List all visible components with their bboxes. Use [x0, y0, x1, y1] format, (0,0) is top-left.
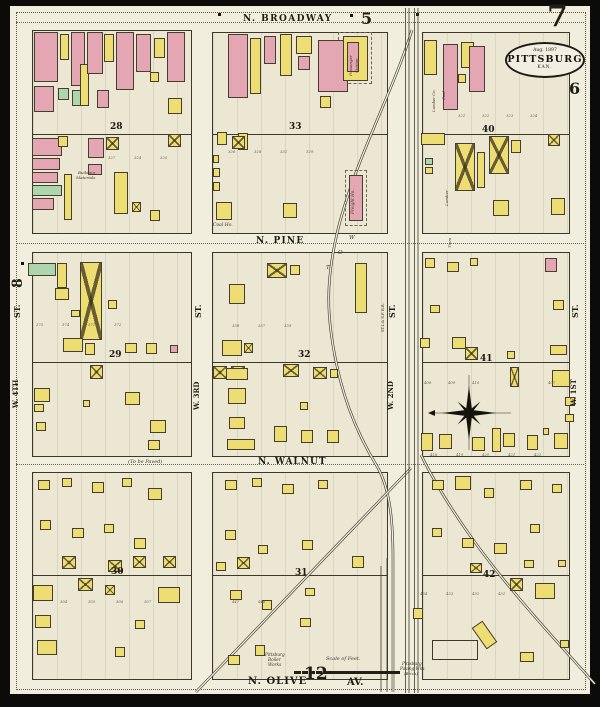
building — [443, 44, 458, 110]
building — [34, 86, 54, 112]
map-label: Lumber — [445, 190, 449, 206]
building — [97, 90, 109, 108]
lot-number: 331 — [280, 150, 287, 154]
building — [88, 138, 104, 158]
lot-number: 421 — [508, 453, 515, 457]
building — [80, 262, 102, 340]
lot-number: 358 — [232, 324, 239, 328]
building — [565, 414, 574, 422]
building — [550, 345, 567, 355]
map-label: W — [349, 236, 355, 242]
lot-number: 447 — [232, 600, 239, 604]
building — [470, 563, 482, 573]
building — [90, 365, 103, 379]
building — [34, 32, 58, 82]
building — [432, 640, 478, 660]
building — [283, 364, 299, 377]
building — [305, 588, 315, 596]
building — [229, 284, 245, 304]
building — [465, 347, 478, 360]
map-seal: Aug. 1897 PITTSBURG KAN. — [505, 42, 585, 78]
lot-number: 408 — [424, 381, 431, 385]
building — [507, 351, 515, 359]
map-label: AV. — [347, 678, 364, 688]
block-number: 29 — [109, 351, 122, 360]
building — [352, 556, 364, 568]
lot-number: 407 — [548, 381, 555, 385]
building — [226, 368, 248, 380]
building — [35, 615, 51, 628]
building — [32, 198, 54, 210]
building — [225, 530, 236, 540]
building — [28, 263, 56, 276]
map-label: 7 — [547, 2, 568, 32]
building — [510, 578, 523, 591]
building — [58, 88, 69, 100]
map-label: N. BROADWAY — [243, 15, 333, 24]
building — [524, 560, 534, 568]
building — [36, 422, 46, 431]
map-label: N. PINE — [256, 237, 304, 246]
map-label: ST. — [571, 305, 579, 318]
seal-city: PITTSBURG — [507, 54, 583, 65]
map-label: Passenger — [349, 55, 353, 76]
block-number: 33 — [289, 123, 302, 132]
lot-number: 326 — [228, 150, 235, 154]
building — [133, 556, 146, 568]
building — [296, 36, 312, 54]
building — [104, 524, 114, 533]
building — [447, 262, 459, 272]
map-label: W. 3RD — [193, 382, 200, 410]
lot-number: 328 — [254, 150, 261, 154]
building — [216, 202, 232, 220]
building — [213, 366, 227, 379]
building — [228, 388, 246, 404]
building — [493, 200, 509, 216]
building — [425, 258, 435, 268]
lot-number: 325 — [160, 156, 167, 160]
map-label: N. WALNUT — [258, 458, 327, 467]
map-label: 12 — [304, 666, 328, 683]
map-label: Lumber Co. — [432, 89, 436, 112]
building — [150, 420, 166, 433]
map-label: ST. — [194, 305, 202, 318]
building — [553, 300, 564, 310]
map-label: 8 — [11, 278, 25, 288]
map-label: Works — [268, 663, 281, 667]
building — [217, 132, 227, 145]
building — [32, 185, 62, 196]
lot-number: 359 — [284, 324, 291, 328]
building — [290, 265, 300, 275]
map-label: W. 4TH — [12, 380, 19, 408]
building — [232, 136, 245, 149]
lot-number: 323 — [506, 114, 513, 118]
building — [34, 404, 44, 412]
building — [72, 528, 84, 538]
building — [320, 96, 331, 108]
lot-number: 306 — [116, 600, 123, 604]
building — [420, 338, 430, 348]
building — [318, 480, 328, 489]
building — [136, 34, 151, 72]
building — [122, 478, 132, 487]
building — [424, 40, 437, 75]
building — [282, 484, 294, 494]
building — [551, 198, 565, 215]
block-number: 28 — [110, 123, 123, 132]
building — [413, 608, 423, 619]
building — [530, 524, 540, 533]
building — [301, 430, 313, 443]
lot-number: 410 — [472, 381, 479, 385]
map-label: 6 — [569, 81, 580, 97]
map-label: Freight Ho. — [351, 189, 355, 214]
building — [330, 369, 338, 378]
map-label: W. 2ND — [387, 381, 394, 410]
lot-number: 305 — [88, 600, 95, 604]
building — [92, 482, 104, 493]
lot-number: 419 — [456, 453, 463, 457]
building — [58, 136, 68, 147]
building — [267, 263, 287, 278]
map-label: Coal — [442, 91, 446, 100]
building — [489, 136, 509, 174]
building — [430, 305, 440, 313]
building — [494, 543, 507, 554]
building — [63, 338, 83, 352]
building — [455, 143, 475, 191]
building — [280, 34, 292, 76]
building — [250, 38, 261, 94]
building — [229, 417, 245, 429]
lot-number: 371 — [88, 323, 95, 327]
building — [432, 528, 442, 537]
building — [60, 34, 69, 60]
building — [469, 46, 485, 92]
building — [168, 134, 181, 147]
building — [300, 402, 308, 410]
building — [85, 343, 95, 355]
building — [38, 480, 50, 490]
map-label: (To be Paved) — [128, 460, 162, 465]
building — [37, 640, 57, 655]
building — [255, 645, 265, 656]
building — [213, 155, 219, 163]
building — [146, 343, 157, 354]
map-label: Tiers — [448, 238, 452, 248]
lot-number: 433 — [446, 592, 453, 596]
building — [168, 98, 182, 114]
building — [327, 430, 339, 443]
map-label: Scale of Feet. — [326, 657, 361, 662]
building — [213, 168, 220, 177]
building — [125, 343, 137, 353]
building — [40, 520, 51, 530]
building — [150, 72, 159, 82]
seal-state: KAN. — [507, 65, 583, 70]
lot-number: 434 — [420, 592, 427, 596]
building — [170, 345, 178, 353]
map-label: N. OLIVE — [248, 677, 307, 687]
lot-number: 304 — [60, 600, 67, 604]
building — [125, 392, 140, 405]
block-number: 42 — [483, 571, 496, 580]
map-label: (Brick) — [404, 672, 418, 676]
building — [458, 74, 466, 83]
lot-number: 431 — [498, 592, 505, 596]
building — [116, 32, 134, 90]
block-number: 32 — [298, 351, 311, 360]
lot-number: 422 — [534, 453, 541, 457]
building — [552, 484, 562, 493]
building — [154, 38, 165, 58]
building — [87, 32, 103, 74]
building — [222, 340, 242, 356]
building — [432, 480, 444, 490]
building — [228, 34, 248, 98]
lot-number: 418 — [430, 453, 437, 457]
building — [167, 32, 185, 82]
lot-number: 321 — [458, 114, 465, 118]
building — [520, 480, 532, 490]
block-number: 41 — [480, 355, 493, 364]
block-number: 31 — [295, 569, 308, 578]
building — [455, 476, 471, 490]
building — [71, 310, 80, 317]
map-label: ST. — [388, 305, 396, 318]
lot-number: 327 — [108, 156, 115, 160]
building — [148, 440, 160, 450]
building — [134, 538, 146, 549]
building — [115, 647, 125, 657]
lot-number: 307 — [144, 600, 151, 604]
building — [554, 433, 568, 449]
map-label: W. 1ST — [570, 379, 577, 406]
building — [64, 174, 72, 220]
building — [150, 210, 160, 221]
building — [300, 618, 311, 627]
building — [227, 439, 255, 450]
seal-date: Aug. 1897 — [507, 48, 583, 53]
building — [135, 620, 145, 629]
compass-rose-icon — [425, 369, 515, 459]
building — [452, 337, 466, 349]
building — [520, 652, 534, 662]
lot-number: 432 — [472, 592, 479, 596]
scale-bar-tick — [301, 671, 302, 674]
building — [258, 545, 268, 554]
lot-number: 324 — [530, 114, 537, 118]
lot-number: 329 — [306, 150, 313, 154]
building — [560, 640, 569, 648]
map-label: O — [338, 251, 343, 257]
building — [237, 557, 250, 569]
block-number: 40 — [482, 126, 495, 135]
building — [302, 540, 313, 550]
building — [104, 34, 114, 62]
building — [225, 480, 237, 490]
building — [62, 556, 76, 569]
building — [148, 488, 162, 500]
building — [228, 655, 240, 665]
building — [78, 578, 93, 591]
map-label: Station — [355, 58, 359, 73]
building — [274, 426, 287, 442]
lot-number: 420 — [482, 453, 489, 457]
lot-number: 324 — [134, 156, 141, 160]
lot-number: 375 — [36, 323, 43, 327]
building — [470, 258, 478, 266]
building — [216, 562, 226, 571]
building — [355, 263, 367, 313]
building — [313, 367, 327, 379]
block-number: 30 — [111, 568, 124, 577]
building — [264, 36, 276, 64]
lot-number: 374 — [62, 323, 69, 327]
building — [298, 56, 310, 70]
building — [425, 158, 433, 165]
building — [477, 152, 485, 188]
building — [545, 258, 557, 272]
map-label: Materials — [76, 176, 95, 180]
lot-number: 409 — [448, 381, 455, 385]
building — [535, 583, 555, 599]
building — [484, 488, 494, 498]
building — [106, 137, 119, 150]
building — [527, 435, 538, 450]
building — [32, 172, 58, 183]
map-label: ST. — [13, 305, 21, 318]
building — [252, 478, 262, 487]
lot-number: 322 — [482, 114, 489, 118]
building — [158, 587, 180, 603]
building — [132, 202, 141, 212]
lot-number: 372 — [114, 323, 121, 327]
building — [105, 585, 115, 595]
building — [57, 263, 67, 288]
building — [462, 538, 474, 548]
building — [114, 172, 128, 214]
building — [548, 134, 560, 146]
building — [108, 300, 117, 309]
lot-number: 357 — [258, 324, 265, 328]
map-label: 5 — [361, 11, 372, 27]
map-label: T — [326, 266, 330, 272]
building — [163, 556, 176, 568]
building — [33, 585, 53, 601]
building — [83, 400, 90, 407]
building — [558, 560, 566, 567]
building — [213, 182, 220, 191]
building — [32, 158, 60, 170]
building — [511, 140, 521, 153]
building — [34, 388, 50, 402]
map-label: Coal Ho. — [213, 224, 233, 229]
building — [283, 203, 297, 218]
building — [244, 343, 253, 353]
building — [543, 428, 549, 435]
building — [425, 167, 433, 174]
building — [55, 288, 69, 300]
map-photo-background: Aug. 1897 PITTSBURG KAN. N. BROADWAYN. P… — [0, 0, 600, 707]
lot-number: 448 — [258, 600, 265, 604]
building — [421, 133, 445, 145]
map-label: ST.L.& S.F. R.R. — [382, 303, 386, 332]
building — [62, 478, 72, 487]
